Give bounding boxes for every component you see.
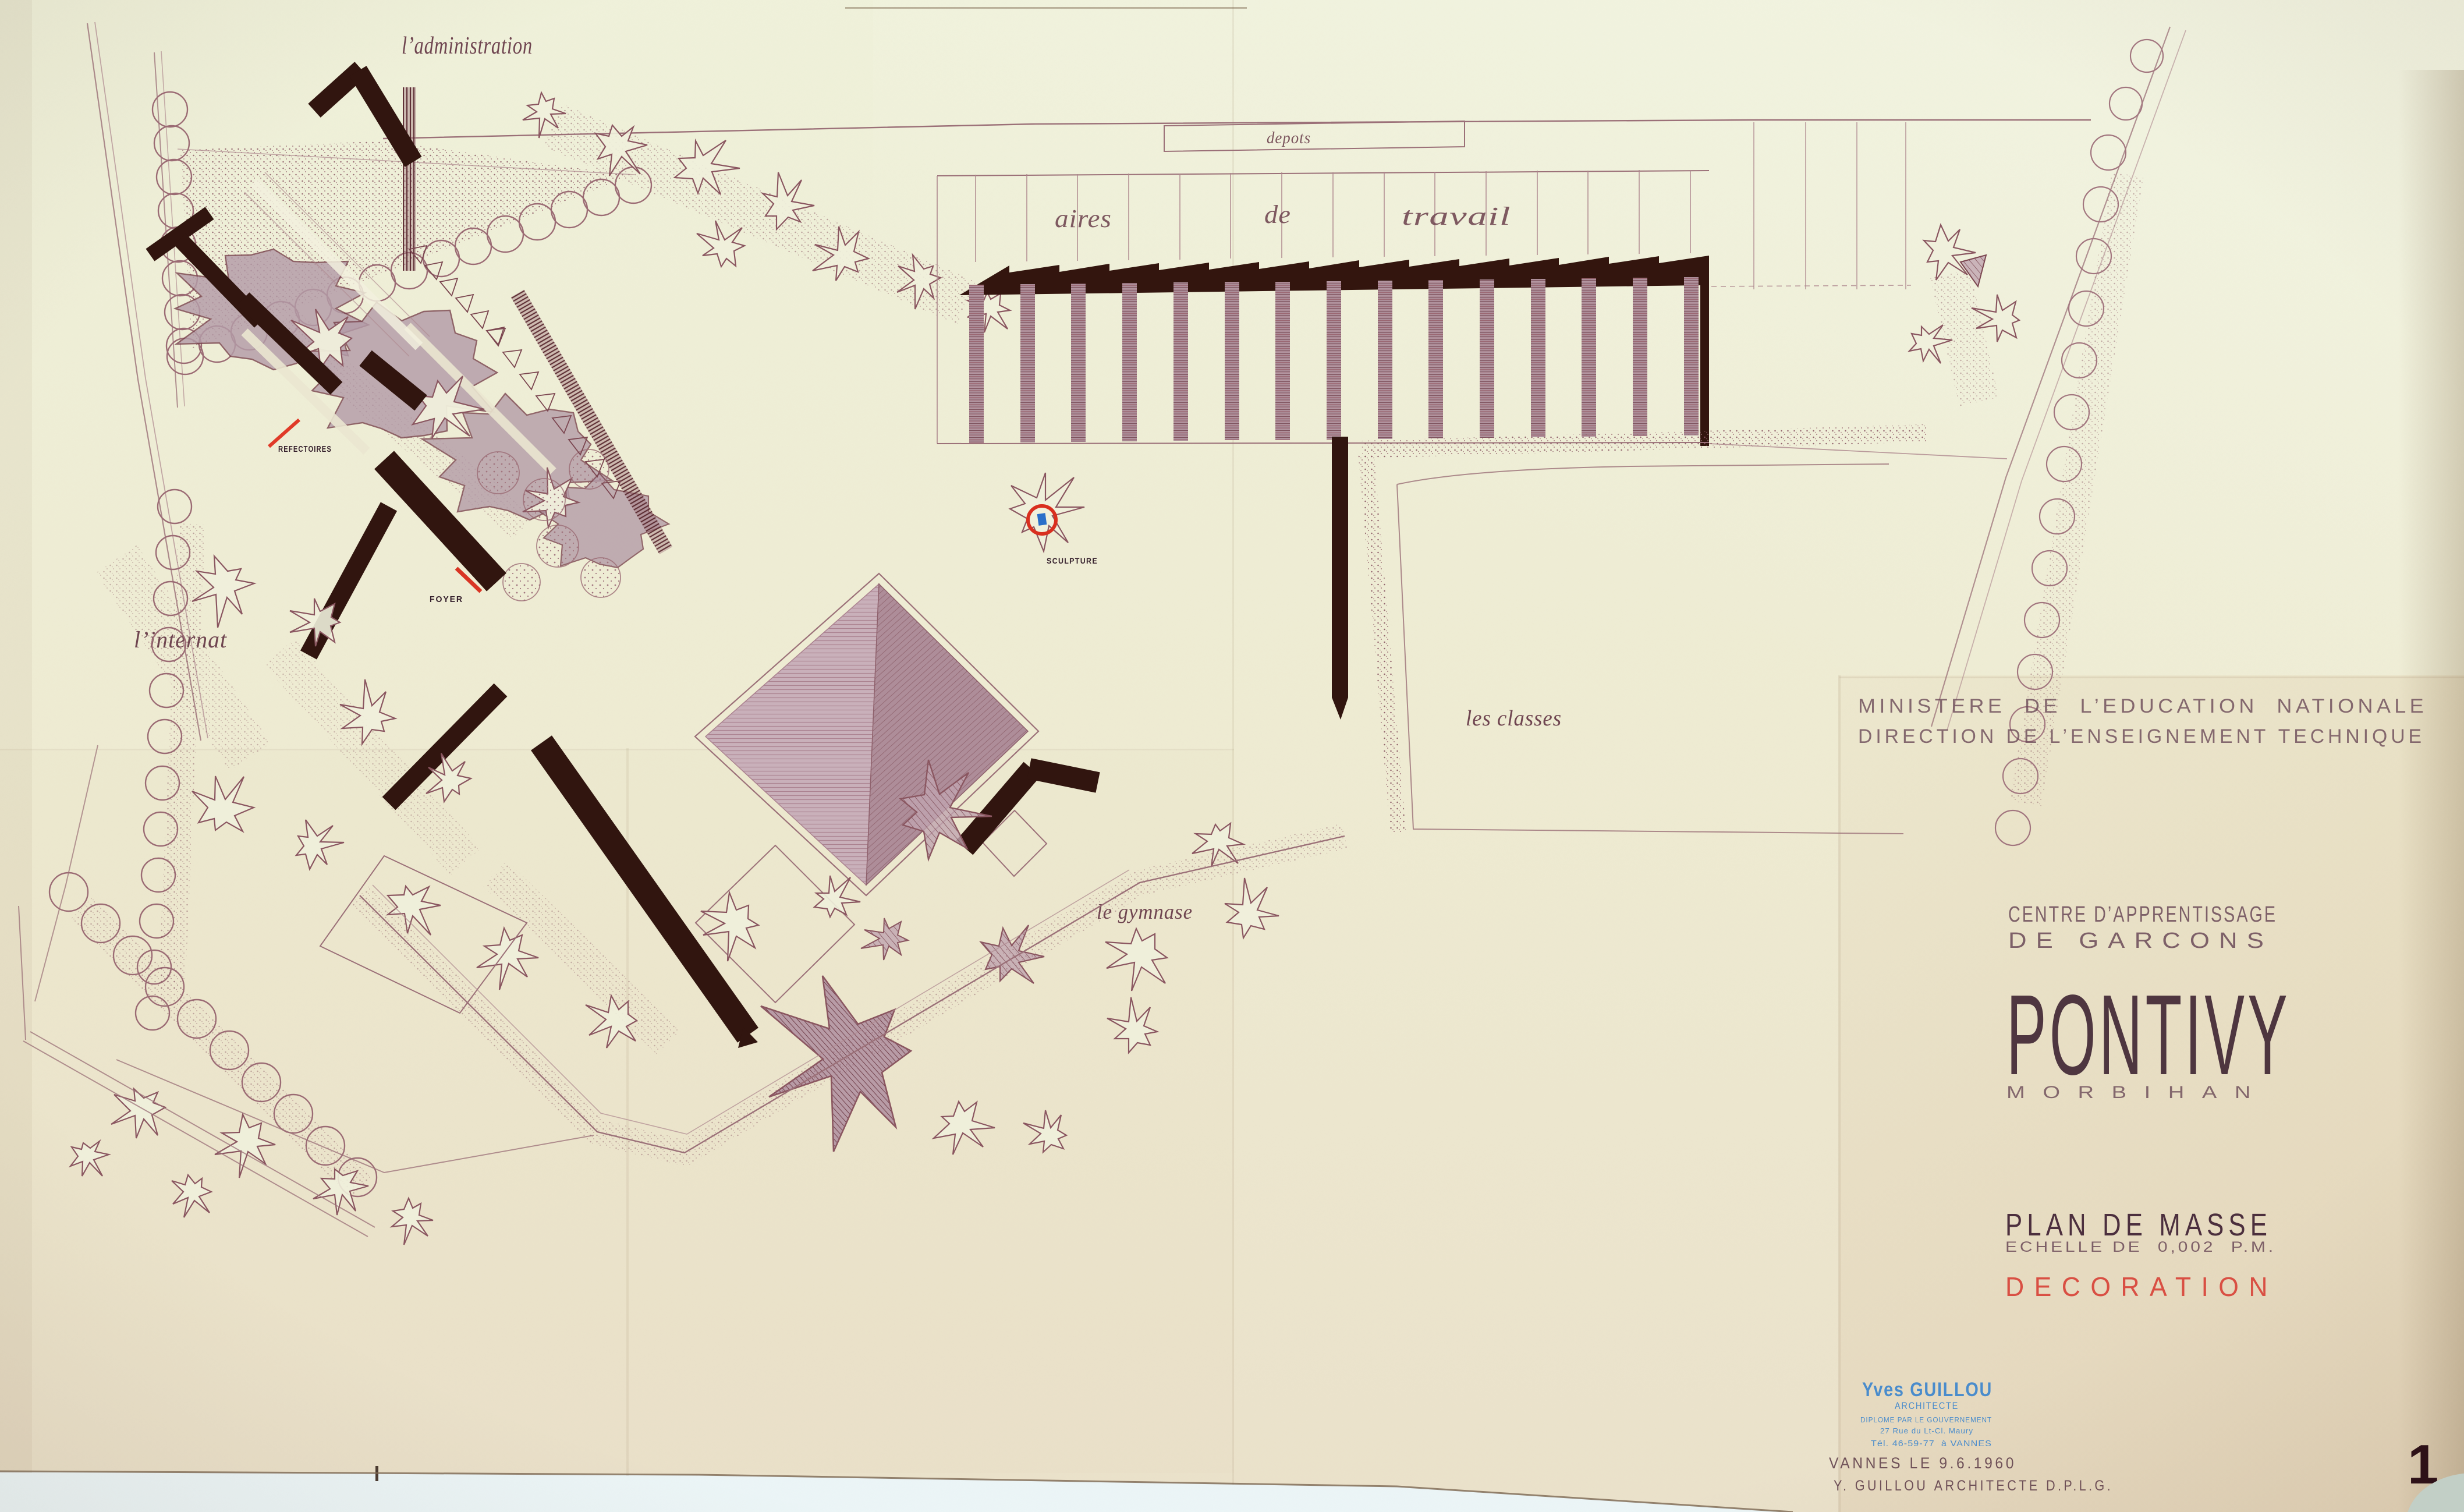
svg-text:Tél. 46-59-77 à VANNES: Tél. 46-59-77 à VANNES — [1871, 1439, 1992, 1449]
svg-text:MINISTERE DE L’EDUCATION NA: MINISTERE DE L’EDUCATION NATIONALE — [1858, 695, 2427, 717]
svg-text:CENTRE D’APPRENTISSAGE: CENTRE D’APPRENTISSAGE — [2008, 902, 2277, 927]
svg-text:DE GARCONS: DE GARCONS — [2008, 929, 2273, 953]
svg-text:SCULPTURE: SCULPTURE — [1047, 556, 1098, 565]
svg-text:VANNES LE 9.6.1960: VANNES LE 9.6.1960 — [1829, 1454, 2016, 1472]
svg-text:travail: travail — [1402, 202, 1511, 231]
svg-text:ARCHITECTE: ARCHITECTE — [1895, 1400, 1959, 1411]
svg-text:aires: aires — [1055, 204, 1112, 233]
svg-text:depots: depots — [1267, 129, 1311, 147]
svg-text:27 Rue du Lt-Cl. Maury: 27 Rue du Lt-Cl. Maury — [1880, 1426, 1973, 1435]
svg-text:DIRECTION DE L’ENSEIGNEMENT TE: DIRECTION DE L’ENSEIGNEMENT TECHNIQUE — [1858, 725, 2425, 748]
svg-text:Yves GUILLOU: Yves GUILLOU — [1862, 1379, 1993, 1401]
svg-text:Y. GUILLOU ARCHITECTE D.P.L.G.: Y. GUILLOU ARCHITECTE D.P.L.G. — [1834, 1478, 2113, 1494]
svg-text:FOYER: FOYER — [430, 594, 463, 604]
svg-text:ECHELLE DE 0,002 P.M.: ECHELLE DE 0,002 P.M. — [2005, 1239, 2276, 1255]
svg-text:les classes: les classes — [1466, 706, 1562, 731]
svg-text:PONTIVY: PONTIVY — [2006, 971, 2291, 1099]
svg-text:MORBIHAN: MORBIHAN — [2006, 1083, 2268, 1102]
svg-text:DECORATION: DECORATION — [2005, 1272, 2278, 1302]
svg-text:l’administration: l’administration — [402, 33, 533, 59]
svg-text:REFECTOIRES: REFECTOIRES — [278, 444, 332, 454]
svg-text:DIPLOME PAR LE GOUVERNEMENT: DIPLOME PAR LE GOUVERNEMENT — [1860, 1415, 1992, 1424]
svg-text:PLAN DE MASSE: PLAN DE MASSE — [2005, 1208, 2272, 1242]
svg-text:de: de — [1264, 200, 1291, 229]
